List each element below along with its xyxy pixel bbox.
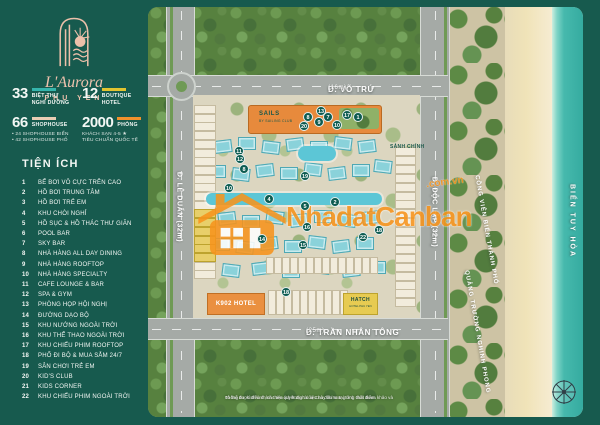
amenity-item: 10NHÀ HÀNG SPECIALTY <box>22 270 148 280</box>
villa-block <box>357 139 376 154</box>
amenity-number: 18 <box>22 351 38 361</box>
shophouse-unit <box>194 157 216 166</box>
amenities-list: 1BỂ BƠI VÔ CỰC TRÊN CAO2HỒ BƠI TRUNG TÂM… <box>22 178 148 402</box>
amenity-map-badge: 18 <box>281 287 291 297</box>
shophouse-unit <box>338 257 346 274</box>
amenity-number: 6 <box>22 229 38 239</box>
amenity-number: 10 <box>22 270 38 280</box>
stat-right: SHOPHOUSE <box>32 115 68 129</box>
villa-block <box>331 239 350 254</box>
sea-label: BIỂN TUY HÒA <box>569 184 576 258</box>
amenity-map-badge: 22 <box>358 232 368 242</box>
shophouse-unit <box>290 257 298 274</box>
amenity-number: 22 <box>22 392 38 402</box>
amenity-item: 2HỒ BƠI TRUNG TÂM <box>22 188 148 198</box>
stat-right: BIỆT THỰ NGHỈ DƯỠNG <box>32 86 70 106</box>
amenity-item: 18PHỐ ĐI BỘ & MUA SẮM 24/7 <box>22 351 148 361</box>
shophouse-unit <box>395 245 416 254</box>
shophouse-unit <box>274 257 282 274</box>
stat-note: • 24 SHOPHOUSE BIỂN <box>12 132 78 137</box>
shophouse-unit <box>316 290 324 315</box>
amenity-label: NHÀ HÀNG SPECIALTY <box>38 270 148 280</box>
shophouse-unit <box>324 290 332 315</box>
shophouse-unit <box>292 290 300 315</box>
amenity-item: 11CAFE LOUNGE & BAR <box>22 280 148 290</box>
amenity-label: NHÀ HÀNG ROOFTOP <box>38 260 148 270</box>
amenity-number: 15 <box>22 321 38 331</box>
shophouse-unit <box>194 175 216 184</box>
shophouse-unit <box>395 192 416 201</box>
amenity-label: KHU NƯỚNG NGOÀI TRỜI <box>38 321 148 331</box>
amenity-map-badge: 19 <box>300 171 310 181</box>
amenity-label: NHÀ HÀNG ALL DAY DINING <box>38 249 148 259</box>
amenity-label: KHU THỂ THAO NGOÀI TRỜI <box>38 331 148 341</box>
stat-right: PHÒNG <box>117 115 141 129</box>
amenity-number: 12 <box>22 290 38 300</box>
shophouse-unit <box>370 257 378 274</box>
amenity-item: 9NHÀ HÀNG ROOFTOP <box>22 260 148 270</box>
amenity-map-badge: 14 <box>257 234 267 244</box>
amenity-number: 7 <box>22 239 38 249</box>
stat-top: 33BIỆT THỰ NGHỈ DƯỠNG <box>12 86 78 106</box>
shophouse-unit <box>314 257 322 274</box>
amenity-item: 13PHÒNG HỌP HỘI NGHỊ <box>22 300 148 310</box>
stat-underline <box>117 117 141 120</box>
stat: 66SHOPHOUSE• 24 SHOPHOUSE BIỂN• 42 SHOPH… <box>12 115 78 143</box>
amenity-map-badge: 12 <box>235 154 245 164</box>
amenity-number: 9 <box>22 260 38 270</box>
shophouse-unit <box>282 257 290 274</box>
villa-block <box>327 166 346 181</box>
amenity-label: KHU CHIẾU PHIM NGOÀI TRỜI <box>38 392 148 402</box>
amenity-label: HỒ BƠI TRẺ EM <box>38 198 148 208</box>
main-lobby-label: SẢNH CHÍNH <box>390 144 424 150</box>
shophouse-unit <box>330 257 338 274</box>
stat-top: 2000PHÒNG <box>82 115 146 130</box>
amenity-number: 16 <box>22 331 38 341</box>
amenity-number: 4 <box>22 209 38 219</box>
shophouse-unit <box>306 257 314 274</box>
stat-label: SHOPHOUSE <box>32 122 68 129</box>
shophouse-unit <box>395 298 416 307</box>
amenity-label: HỒ BƠI TRUNG TÂM <box>38 188 148 198</box>
amenity-number: 17 <box>22 341 38 351</box>
villa-block <box>261 140 280 155</box>
sails-label: SAILS <box>259 111 280 117</box>
shophouse-unit <box>266 257 274 274</box>
amenity-map-badge: 10 <box>224 183 234 193</box>
stat-note: KHÁCH SẠN 4-5 ★ <box>82 132 146 137</box>
amenities-title: TIỆN ÍCH <box>22 158 148 170</box>
stat-right: BOUTIQUE HOTEL <box>102 86 132 106</box>
shophouse-unit <box>308 290 316 315</box>
amenity-number: 19 <box>22 362 38 372</box>
sails-sublabel: BY SAILING CLUB <box>259 119 292 123</box>
amenity-item: 4KHU CHÒI NGHỈ <box>22 209 148 219</box>
shophouse-unit <box>268 290 276 315</box>
amenity-item: 5HỒ SỤC & HỒ THÁC THƯ GIÃN <box>22 219 148 229</box>
shophouse-unit <box>395 272 416 281</box>
amenity-map-badge: 17 <box>342 110 352 120</box>
shophouse-unit <box>395 254 416 263</box>
hatch-label: HATCH <box>344 297 377 303</box>
amenity-map-badge: 16 <box>302 222 312 232</box>
amenity-item: 20KID'S CLUB <box>22 372 148 382</box>
stat-label: BOUTIQUE HOTEL <box>102 93 132 106</box>
amenity-map-badge: 2 <box>330 197 340 207</box>
shophouse-unit <box>346 257 354 274</box>
amenity-item: 17KHU CHIẾU PHIM ROOFTOP <box>22 341 148 351</box>
amenity-number: 14 <box>22 311 38 321</box>
shophouse-unit <box>395 183 416 192</box>
stat-label: PHÒNG <box>117 122 141 129</box>
amenity-item: 14ĐƯỜNG DẠO BỘ <box>22 311 148 321</box>
shophouse-unit <box>395 281 416 290</box>
stat-underline <box>102 88 126 91</box>
amenity-item: 7SKY BAR <box>22 239 148 249</box>
amenity-map-badge: 1 <box>353 112 363 122</box>
shophouse-unit <box>194 166 216 175</box>
stat: 12BOUTIQUE HOTEL <box>82 86 146 106</box>
arch-sun-logo-icon <box>51 12 97 68</box>
villa-block <box>307 235 326 250</box>
amenity-label: CAFE LOUNGE & BAR <box>38 280 148 290</box>
shophouse-unit <box>298 257 306 274</box>
amenity-label: SÂN CHƠI TRẺ EM <box>38 362 148 372</box>
shophouse-unit <box>194 149 216 158</box>
shophouse-unit <box>300 290 308 315</box>
hatch-hotel-building: HATCH HOTEL PHU YEN <box>343 293 378 315</box>
shophouse-unit <box>395 263 416 272</box>
central-pool <box>298 146 336 161</box>
amenity-number: 8 <box>22 249 38 259</box>
amenity-number: 2 <box>22 188 38 198</box>
amenity-label: SPA & GYM <box>38 290 148 300</box>
shophouse-unit <box>194 114 216 123</box>
shophouse-unit <box>354 257 362 274</box>
amenity-item: 19SÂN CHƠI TRẺ EM <box>22 362 148 372</box>
shophouse-unit <box>395 165 416 174</box>
shophouse-unit <box>194 122 216 131</box>
amenity-item: 16KHU THỂ THAO NGOÀI TRỜI <box>22 331 148 341</box>
villa-block <box>373 159 392 174</box>
shophouse-unit <box>194 270 216 279</box>
sidebar: L'Aurora PHU YEN 33BIỆT THỰ NGHỈ DƯỠNG12… <box>0 0 148 425</box>
shophouse-unit <box>194 105 216 114</box>
amenity-map-badge: 18 <box>374 225 384 235</box>
k902-hotel-building: K902 HOTEL <box>207 293 265 315</box>
amenity-item: 21KIDS CORNER <box>22 382 148 392</box>
villa-block <box>280 167 298 180</box>
villa-block <box>213 139 232 154</box>
shophouse-unit <box>395 289 416 298</box>
shophouse-unit <box>194 262 216 271</box>
amenity-label: KID'S CLUB <box>38 372 148 382</box>
amenity-number: 11 <box>22 280 38 290</box>
amenity-label: KHU CHIẾU PHIM ROOFTOP <box>38 341 148 351</box>
hatch-sublabel: HOTEL PHU YEN <box>344 304 377 308</box>
amenity-number: 3 <box>22 198 38 208</box>
amenity-item: 6POOL BAR <box>22 229 148 239</box>
amenity-label: KIDS CORNER <box>38 382 148 392</box>
villa-block <box>255 163 274 178</box>
shophouse-unit <box>395 174 416 183</box>
amenity-label: POOL BAR <box>38 229 148 239</box>
amenity-number: 1 <box>22 178 38 188</box>
amenity-item: 15KHU NƯỚNG NGOÀI TRỜI <box>22 321 148 331</box>
stat-value: 66 <box>12 115 28 130</box>
shophouse-unit <box>395 156 416 165</box>
amenity-label: PHỐ ĐI BỘ & MUA SẮM 24/7 <box>38 351 148 361</box>
amenity-item: 22KHU CHIẾU PHIM NGOÀI TRỜI <box>22 392 148 402</box>
amenity-number: 13 <box>22 300 38 310</box>
stat-value: 33 <box>12 86 28 101</box>
amenity-map-badge: 10 <box>332 120 342 130</box>
amenity-number: 21 <box>22 382 38 392</box>
amenity-label: HỒ SỤC & HỒ THÁC THƯ GIÃN <box>38 219 148 229</box>
street-width: (16m) <box>328 85 347 91</box>
amenity-map-badge: 20 <box>299 121 309 131</box>
street-width: (25m) <box>306 328 325 334</box>
stat: 33BIỆT THỰ NGHỈ DƯỠNG <box>12 86 78 106</box>
amenity-map-badge: 4 <box>264 194 274 204</box>
villa-block <box>221 263 240 278</box>
villa-block <box>333 136 352 151</box>
villa-block <box>352 164 370 177</box>
street-label-le-duan: Đ. LÊ DUẨN (32m) <box>176 172 183 242</box>
amenity-number: 5 <box>22 219 38 229</box>
amenity-number: 20 <box>22 372 38 382</box>
shophouse-unit <box>194 131 216 140</box>
amenity-map-badge: 7 <box>323 112 333 122</box>
amenity-map-badge: 8 <box>239 164 249 174</box>
stat-note: TIÊU CHUẨN QUỐC TẾ <box>82 138 146 143</box>
stat-value: 12 <box>82 86 98 101</box>
stat-underline <box>32 88 56 91</box>
amenity-map-badge: 5 <box>300 201 310 211</box>
amenity-label: BỂ BƠI VÔ CỰC TRÊN CAO <box>38 178 148 188</box>
amenity-item: 12SPA & GYM <box>22 290 148 300</box>
stat: 2000PHÒNGKHÁCH SẠN 4-5 ★TIÊU CHUẨN QUỐC … <box>82 115 146 143</box>
amenity-item: 8NHÀ HÀNG ALL DAY DINING <box>22 249 148 259</box>
amenity-label: SKY BAR <box>38 239 148 249</box>
shophouse-unit <box>332 290 340 315</box>
stat-top: 66SHOPHOUSE <box>12 115 78 130</box>
amenity-label: ĐƯỜNG DẠO BỘ <box>38 311 148 321</box>
shophouse-unit <box>322 257 330 274</box>
stat-value: 2000 <box>82 115 113 130</box>
stat-label: BIỆT THỰ NGHỈ DƯỠNG <box>32 93 70 106</box>
stat-top: 12BOUTIQUE HOTEL <box>82 86 146 106</box>
masterplan-map: SAILS BY SAILING CLUB K902 HOTEL HATCH H… <box>148 7 583 417</box>
stat-note: • 42 SHOPHOUSE PHỐ <box>12 138 78 143</box>
shophouse-unit <box>395 236 416 245</box>
disclaimer-line: có thể được điều chỉnh theo quyết định c… <box>225 395 376 401</box>
stat-underline <box>32 117 56 120</box>
amenity-map-badge: 15 <box>298 240 308 250</box>
shophouse-unit <box>362 257 370 274</box>
amenity-item: 1BỂ BƠI VÔ CỰC TRÊN CAO <box>22 178 148 188</box>
compass-icon <box>550 378 578 406</box>
amenity-label: PHÒNG HỌP HỘI NGHỊ <box>38 300 148 310</box>
stats-grid: 33BIỆT THỰ NGHỈ DƯỠNG12BOUTIQUE HOTEL66S… <box>12 86 142 143</box>
shophouse-unit <box>194 140 216 149</box>
amenity-label: KHU CHÒI NGHỈ <box>38 209 148 219</box>
amenities-legend: TIỆN ÍCH 1BỂ BƠI VÔ CỰC TRÊN CAO2HỒ BƠI … <box>22 158 148 402</box>
amenity-item: 3HỒ BƠI TRẺ EM <box>22 198 148 208</box>
